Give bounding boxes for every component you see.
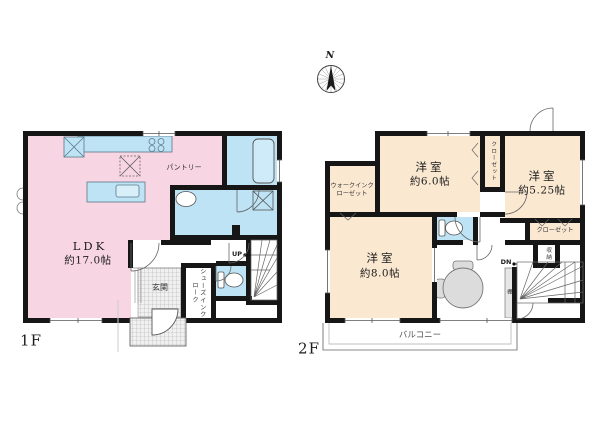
shelf-label: 棚: [506, 288, 513, 296]
shoes-in-closet-label: シューズインクローク: [190, 265, 206, 321]
floor1-label: 1F: [20, 332, 42, 351]
stairs-2f: [517, 262, 583, 303]
floor2-label: 2F: [298, 340, 320, 359]
closet-east-label: クローゼット: [536, 227, 573, 235]
bedroom8-size-label: 約8.0帖: [360, 267, 400, 280]
bedroom6-size-label: 約6.0帖: [410, 175, 450, 188]
floor1-plan: [17, 131, 282, 352]
storage-label: 収納: [543, 245, 550, 263]
stairs-down-label: DN: [501, 258, 512, 266]
wash-basin: [176, 192, 196, 207]
stairs-up-label: UP: [232, 250, 242, 258]
bedroom525-size-label: 約5.25帖: [518, 184, 565, 197]
balcony-label: バルコニー: [399, 331, 441, 342]
toilet-icon-2f: [439, 220, 463, 236]
hall-table: [436, 261, 483, 308]
bathtub: [253, 139, 274, 183]
compass-north-label: N: [326, 50, 335, 62]
closet-north-label: クローゼット: [488, 137, 495, 185]
stairs-1f: [251, 240, 277, 300]
bedroom6-name-label: 洋室: [416, 160, 445, 174]
island-sink: [116, 185, 139, 197]
walk-in-closet-label: ウォークインクローゼット: [329, 182, 375, 198]
entrance-label: 玄関: [152, 283, 168, 293]
bedroom8-name-label: 洋室: [367, 251, 396, 265]
floor-plan-canvas: N 1F 2F LDK 約17.0帖 パントリー 玄関 シューズインクローク U…: [0, 0, 600, 439]
bedroom525-name-label: 洋室: [529, 169, 558, 183]
ldk-name-label: LDK: [73, 239, 107, 253]
compass-rose: [318, 66, 345, 93]
ldk-size-label: 約17.0帖: [64, 254, 111, 267]
pantry-label: パントリー: [166, 164, 201, 173]
floor-plan-drawing: [0, 0, 600, 439]
